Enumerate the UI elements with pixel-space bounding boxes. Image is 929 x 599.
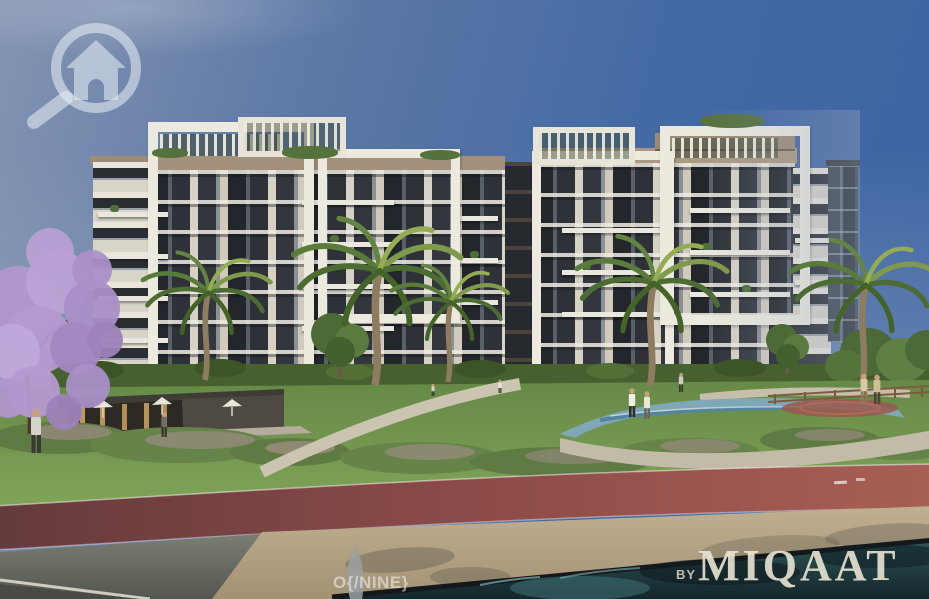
- palm-trees: [143, 219, 929, 387]
- architectural-render: O{/NINE} BY MIQAAT: [0, 0, 929, 599]
- brand-name: MIQAAT: [698, 544, 899, 588]
- playground-patch: [782, 399, 898, 417]
- brand-watermark: BY MIQAAT: [676, 544, 899, 588]
- center-watermark-text: O{/NINE}: [333, 573, 409, 593]
- landscape: [0, 0, 929, 599]
- right-treeline: [825, 328, 929, 382]
- brand-byline-prefix: BY: [676, 567, 696, 582]
